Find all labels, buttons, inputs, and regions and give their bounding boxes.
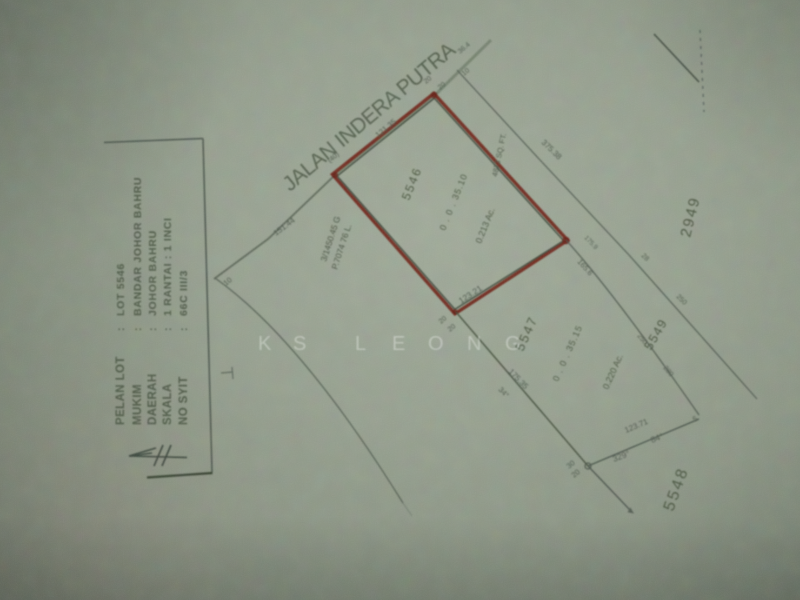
svg-text:P.7074 76 L.: P.7074 76 L. [329, 223, 353, 271]
svg-text:30: 30 [565, 458, 577, 470]
svg-text:165.6: 165.6 [576, 257, 595, 277]
svg-text:175.35: 175.35 [507, 367, 531, 391]
svg-text:N: N [467, 333, 481, 355]
svg-text:10: 10 [222, 275, 234, 287]
svg-text:36.4: 36.4 [457, 41, 472, 55]
svg-text:0 . 0 . 35.10: 0 . 0 . 35.10 [438, 172, 470, 232]
svg-text:250: 250 [635, 333, 648, 347]
svg-text:NO SYIT: NO SYIT [178, 376, 190, 425]
svg-text:329°: 329° [611, 448, 631, 464]
svg-text:20: 20 [437, 81, 448, 91]
svg-text:E: E [392, 333, 405, 355]
svg-text:DAERAH: DAERAH [147, 373, 159, 425]
svg-text:5548: 5548 [661, 465, 693, 514]
svg-text::: : [132, 328, 144, 332]
svg-text:JOHOR BAHRU: JOHOR BAHRU [147, 230, 159, 316]
svg-text:151.44: 151.44 [272, 215, 297, 237]
svg-text:28: 28 [640, 252, 651, 263]
svg-text:5547: 5547 [512, 313, 541, 353]
svg-text:34°: 34° [497, 385, 511, 399]
svg-text:S: S [293, 333, 306, 355]
svg-text:84°: 84° [649, 431, 665, 445]
svg-text:123.21: 123.21 [457, 283, 484, 306]
svg-text:20: 20 [438, 315, 449, 325]
svg-text:MUKIM: MUKIM [132, 384, 144, 425]
svg-text:20: 20 [423, 75, 434, 85]
svg-text:123.71: 123.71 [623, 417, 650, 435]
svg-text:10: 10 [461, 67, 472, 77]
svg-text::: : [115, 328, 127, 332]
svg-text::: : [162, 328, 174, 332]
svg-text:5546: 5546 [399, 165, 425, 202]
svg-text:0 . 0 . 35.15: 0 . 0 . 35.15 [551, 323, 585, 382]
svg-text::: : [147, 328, 159, 332]
svg-text:5549: 5549 [641, 316, 670, 352]
svg-text:O: O [428, 333, 444, 355]
svg-text:280: 280 [661, 365, 674, 379]
svg-text:L: L [355, 333, 366, 355]
svg-text:66C III/3: 66C III/3 [178, 270, 190, 316]
svg-text:4873 SQ. FT.: 4873 SQ. FT. [490, 132, 508, 177]
svg-text:G: G [505, 333, 521, 355]
svg-text:SKALA: SKALA [162, 383, 174, 425]
svg-text:JALAN INDERA PUTRA: JALAN INDERA PUTRA [278, 38, 460, 196]
svg-text:0.213 Ac.: 0.213 Ac. [474, 206, 497, 245]
svg-text:1 RANTAI : 1 INCI: 1 RANTAI : 1 INCI [162, 217, 174, 316]
svg-text:K: K [258, 333, 272, 355]
svg-text:0.220 Ac.: 0.220 Ac. [601, 352, 625, 390]
svg-text:LOT 5546: LOT 5546 [115, 263, 127, 316]
svg-text:PELAN LOT: PELAN LOT [115, 356, 127, 425]
svg-text:20: 20 [570, 467, 582, 479]
svg-text:20: 20 [447, 323, 458, 333]
svg-text:(40): (40) [327, 151, 341, 164]
svg-text:3/1450.45 G: 3/1450.45 G [318, 215, 342, 263]
svg-text:BANDAR JOHOR BAHRU: BANDAR JOHOR BAHRU [132, 177, 144, 316]
svg-text:250: 250 [675, 293, 688, 306]
svg-text:5: 5 [691, 414, 698, 424]
svg-text:2949: 2949 [677, 195, 704, 239]
svg-text::: : [178, 328, 190, 332]
svg-text:375.38: 375.38 [540, 138, 564, 162]
svg-text:121.35: 121.35 [374, 117, 399, 140]
svg-text:175.9: 175.9 [583, 235, 600, 252]
